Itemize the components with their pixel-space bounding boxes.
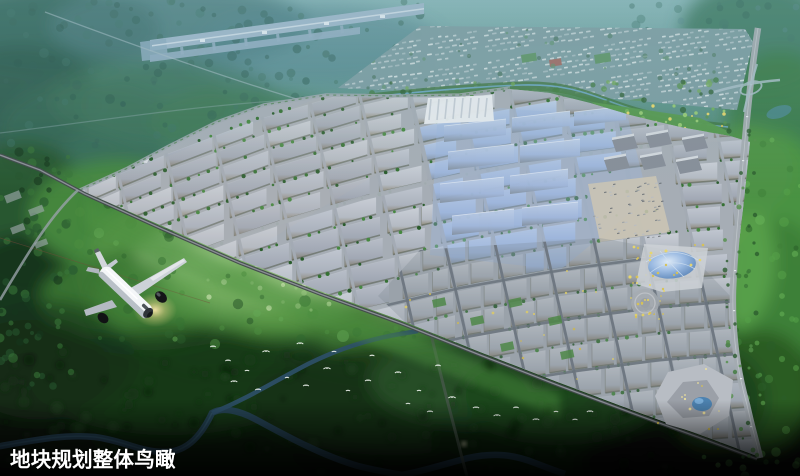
svg-text:地块规划整体鸟瞰: 地块规划整体鸟瞰 (10, 448, 176, 472)
